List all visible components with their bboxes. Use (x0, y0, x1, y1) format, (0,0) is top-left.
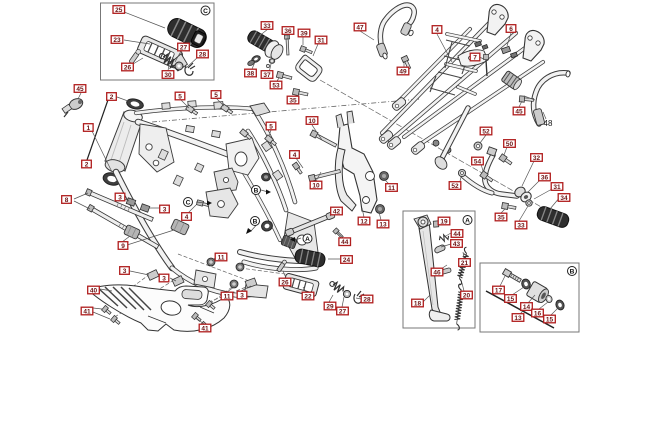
svg-text:27: 27 (339, 308, 347, 315)
svg-text:4: 4 (185, 214, 189, 221)
svg-text:27: 27 (180, 44, 188, 51)
svg-text:9: 9 (121, 243, 125, 250)
svg-text:24: 24 (343, 257, 351, 264)
svg-text:3: 3 (118, 194, 122, 201)
svg-text:33: 33 (517, 222, 525, 229)
svg-text:32: 32 (533, 155, 541, 162)
svg-text:29: 29 (326, 303, 334, 310)
svg-text:44: 44 (341, 239, 349, 246)
svg-text:30: 30 (164, 72, 172, 79)
svg-text:11: 11 (224, 293, 231, 300)
svg-text:1: 1 (86, 125, 90, 132)
svg-text:47: 47 (356, 24, 364, 31)
svg-text:50: 50 (506, 141, 514, 148)
svg-text:52: 52 (451, 183, 459, 190)
svg-text:C: C (186, 199, 191, 206)
svg-text:13: 13 (514, 315, 522, 322)
svg-text:46: 46 (433, 269, 441, 276)
svg-text:C: C (203, 8, 208, 15)
svg-text:6: 6 (509, 26, 513, 33)
svg-text:18: 18 (414, 300, 422, 307)
svg-text:2: 2 (110, 94, 114, 101)
svg-text:34: 34 (560, 195, 568, 202)
svg-text:28: 28 (363, 296, 371, 303)
svg-text:A: A (465, 217, 470, 224)
svg-text:49: 49 (399, 68, 407, 75)
svg-text:5: 5 (269, 123, 273, 130)
svg-text:44: 44 (453, 231, 461, 238)
svg-text:11: 11 (388, 185, 395, 192)
svg-text:28: 28 (199, 51, 207, 58)
svg-text:7: 7 (473, 54, 477, 61)
svg-text:36: 36 (284, 28, 292, 35)
svg-text:12: 12 (360, 218, 368, 225)
svg-text:10: 10 (312, 182, 320, 189)
svg-text:A: A (305, 236, 310, 243)
svg-text:11: 11 (218, 254, 225, 261)
svg-text:36: 36 (541, 174, 549, 181)
svg-text:41: 41 (83, 308, 91, 315)
svg-text:52: 52 (482, 128, 490, 135)
svg-text:4: 4 (293, 152, 297, 159)
svg-text:B: B (253, 218, 258, 225)
svg-text:5: 5 (214, 92, 218, 99)
svg-text:3: 3 (240, 292, 244, 299)
svg-text:42: 42 (333, 208, 341, 215)
svg-text:40: 40 (90, 287, 98, 294)
svg-text:31: 31 (317, 37, 325, 44)
svg-text:37: 37 (263, 72, 271, 79)
svg-text:45: 45 (76, 86, 84, 93)
svg-text:4: 4 (435, 27, 439, 34)
svg-text:26: 26 (281, 279, 289, 286)
svg-text:31: 31 (553, 184, 561, 191)
svg-text:17: 17 (495, 287, 503, 294)
svg-text:22: 22 (304, 293, 312, 300)
svg-text:35: 35 (289, 97, 297, 104)
svg-text:38: 38 (247, 70, 255, 77)
svg-text:15: 15 (546, 316, 554, 323)
svg-text:53: 53 (272, 82, 280, 89)
svg-text:13: 13 (379, 221, 387, 228)
svg-text:41: 41 (201, 325, 209, 332)
svg-text:3: 3 (123, 268, 127, 275)
svg-text:5: 5 (178, 93, 182, 100)
svg-text:3: 3 (163, 206, 167, 213)
svg-text:3: 3 (162, 275, 166, 282)
svg-text:23: 23 (113, 37, 121, 44)
svg-text:45: 45 (515, 108, 523, 115)
svg-text:2: 2 (85, 161, 89, 168)
svg-text:39: 39 (300, 30, 308, 37)
svg-text:16: 16 (534, 310, 542, 317)
svg-text:B: B (254, 187, 259, 194)
svg-text:8: 8 (65, 197, 69, 204)
svg-text:35: 35 (497, 214, 505, 221)
svg-text:54: 54 (474, 158, 482, 165)
svg-text:25: 25 (115, 7, 123, 14)
svg-text:26: 26 (124, 64, 132, 71)
svg-text:10: 10 (308, 118, 316, 125)
svg-text:20: 20 (463, 292, 471, 299)
svg-text:B: B (570, 268, 575, 275)
svg-text:15: 15 (507, 296, 515, 303)
svg-text:21: 21 (461, 260, 469, 267)
svg-text:14: 14 (523, 304, 531, 311)
svg-text:33: 33 (263, 23, 271, 30)
svg-text:43: 43 (453, 241, 461, 248)
svg-text:19: 19 (440, 218, 448, 225)
svg-text:48: 48 (544, 119, 553, 128)
